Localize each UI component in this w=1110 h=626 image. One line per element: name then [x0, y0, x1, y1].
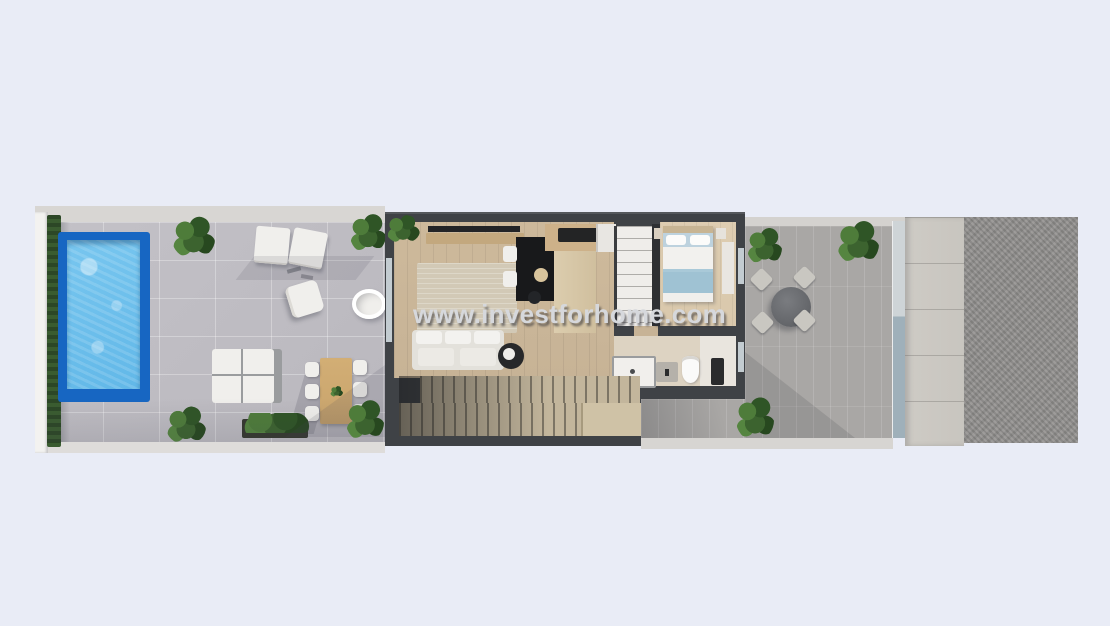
bed-headboard	[663, 226, 713, 233]
fridge	[596, 224, 616, 252]
tv-screen	[428, 226, 520, 232]
swimming-pool	[58, 232, 150, 402]
bedroom-window	[738, 248, 744, 284]
bed-pillow	[690, 235, 710, 245]
nightstand	[716, 228, 726, 239]
bedroom-bench	[722, 242, 734, 294]
tv-sideboard	[426, 233, 524, 244]
potted-plant	[350, 213, 386, 253]
outdoor-corner-sofa	[212, 349, 282, 403]
gravel-area	[964, 217, 1078, 443]
rear-bottom-band	[641, 438, 893, 449]
sofa-cushions	[212, 349, 274, 403]
island-plate	[534, 268, 548, 282]
table-centerpiece-plant	[330, 386, 343, 397]
sofa-seat-cushion	[460, 348, 496, 366]
egg-chair	[352, 289, 386, 319]
bed-blanket	[663, 272, 713, 293]
sofa-back-cushion	[445, 331, 471, 344]
indoor-sofa	[412, 330, 504, 370]
bathroom-vanity	[656, 362, 678, 382]
sofa-back-cushion	[474, 331, 500, 344]
sofa-seat-cushion	[418, 348, 454, 366]
shower-drain	[630, 369, 635, 374]
potted-plant	[736, 396, 774, 440]
vanity-faucet	[665, 369, 669, 376]
staircase-shadow	[399, 376, 640, 436]
bathroom-window	[738, 342, 744, 372]
shower-fixture	[711, 358, 724, 385]
round-armchair	[498, 343, 524, 369]
sofa-back-cushion	[416, 331, 442, 344]
sliding-glass-door	[386, 258, 392, 342]
potted-plant	[747, 227, 782, 265]
floorplan-render: www.investforhome.com	[0, 0, 1110, 626]
double-bed	[663, 226, 713, 302]
potted-plant	[346, 399, 384, 441]
outdoor-dining-chair	[305, 384, 319, 399]
potted-plant	[172, 216, 215, 258]
potted-plant	[386, 215, 420, 243]
outdoor-dining-chair	[353, 360, 367, 375]
bar-stool	[503, 246, 517, 262]
bed-pillow	[666, 235, 686, 245]
terrace-top-wall	[35, 206, 385, 223]
armchair-cushion	[503, 348, 515, 360]
toilet	[682, 356, 699, 383]
cast-shadow	[47, 398, 385, 442]
stone-walkway	[905, 217, 964, 446]
bed-sheet	[663, 247, 713, 272]
pool-water	[67, 240, 140, 389]
outdoor-dining-chair	[305, 362, 319, 377]
cast-shadow	[236, 256, 375, 280]
bar-stool	[503, 271, 517, 287]
potted-plant	[837, 220, 879, 264]
watermark-text: www.investforhome.com	[413, 299, 726, 330]
nightstand	[654, 228, 662, 239]
